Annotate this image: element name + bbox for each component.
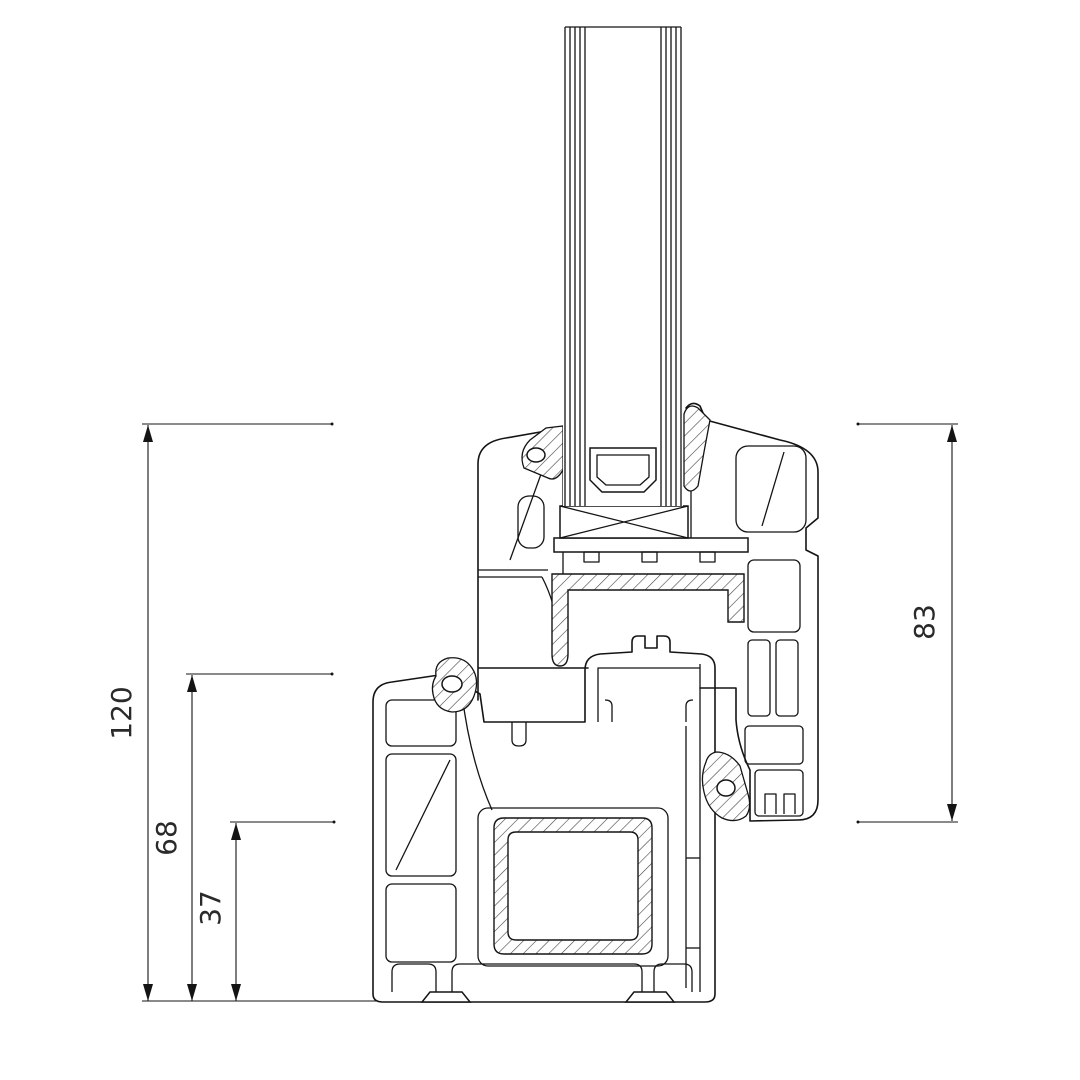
frame-profile [373, 636, 715, 1002]
frame-fixing-foot [626, 992, 674, 1002]
sash-chamber [748, 560, 800, 632]
sash-rebate-bar [554, 538, 748, 552]
bead-clip-channel [518, 496, 544, 548]
sash-chamber [745, 726, 803, 764]
sash-chamber [748, 640, 770, 716]
cad-drawing-svg: 120 68 37 83 [0, 0, 1080, 1080]
sash-chamber [736, 446, 806, 532]
dimension-frame-below-sash-37: 37 [194, 821, 336, 1002]
dimension-sash-height-83: 83 [857, 423, 959, 824]
dimension-label-83: 83 [908, 604, 941, 640]
dimension-label-37: 37 [194, 890, 227, 926]
dimension-frame-height-68: 68 [150, 673, 334, 1002]
sash-euro-groove [755, 770, 803, 816]
glazing-unit [560, 27, 688, 538]
window-cross-section-drawing: 120 68 37 83 [0, 0, 1080, 1080]
gasket-hollow [717, 780, 735, 796]
frame-fixing-foot [422, 992, 470, 1002]
dimension-label-120: 120 [105, 686, 138, 739]
sash-chamber [776, 640, 798, 716]
glazing-gasket-right [684, 406, 710, 491]
gasket-hollow [527, 448, 545, 462]
dimension-label-68: 68 [150, 820, 183, 856]
gasket-hollow [442, 676, 462, 692]
